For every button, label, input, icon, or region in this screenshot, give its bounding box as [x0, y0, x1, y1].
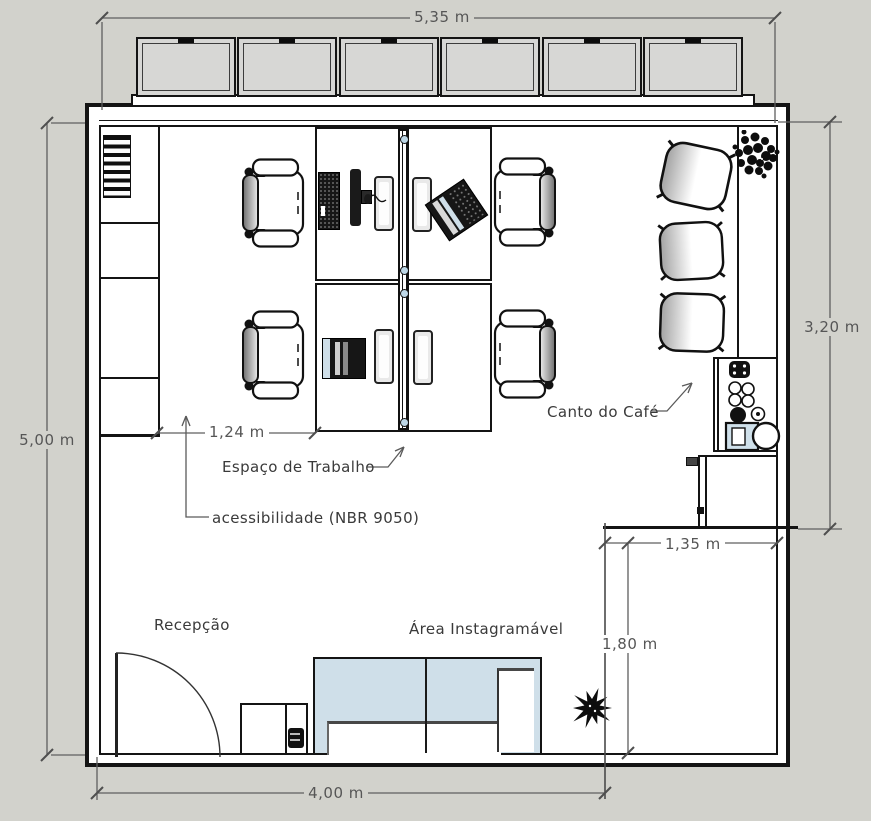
dim-text-bottom: 4,00 m: [302, 785, 370, 802]
dimension-overlay: [0, 0, 871, 821]
dim-text-niche-width: 1,35 m: [661, 536, 723, 553]
dimension-ticks: [41, 12, 836, 799]
dim-text-right: 3,20 m: [800, 319, 864, 336]
dim-text-niche-depth: 1,80 m: [598, 636, 660, 653]
floor-plan-canvas: 5,35 m 5,00 m 3,20 m 4,00 m 1,35 m 1,80 …: [0, 0, 871, 821]
dim-text-aisle: 1,24 m: [205, 424, 267, 441]
label-coffee-corner: Canto do Café: [547, 403, 659, 421]
dim-text-top: 5,35 m: [408, 9, 476, 26]
label-instagram-area: Área Instagramável: [409, 620, 563, 638]
label-accessibility: acessibilidade (NBR 9050): [212, 509, 419, 527]
label-workspace: Espaço de Trabalho: [222, 458, 375, 476]
label-reception: Recepção: [154, 616, 230, 634]
mouse-icon: [364, 194, 372, 204]
door-swing-arc: [116, 653, 220, 757]
dim-text-left: 5,00 m: [8, 432, 86, 449]
